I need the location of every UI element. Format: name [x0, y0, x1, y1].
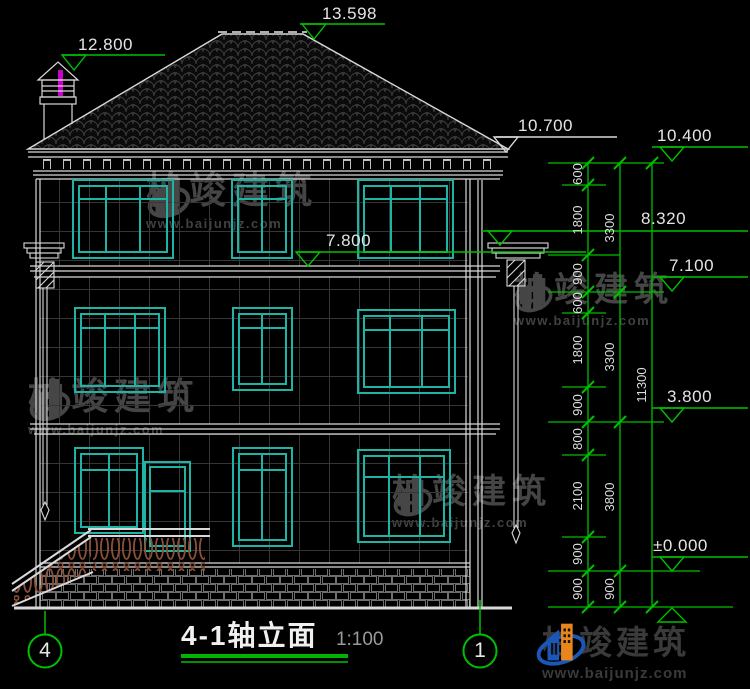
eave-cornice — [28, 152, 508, 179]
elevation-label: 13.598 — [322, 4, 377, 24]
axis-bubble-1: 1 — [467, 638, 493, 664]
elevation-label: 7.100 — [669, 256, 714, 276]
dimension-text: 1800 — [571, 190, 585, 250]
dimension-text: 1800 — [571, 320, 585, 380]
eave-elevation-symbol — [494, 137, 617, 152]
dimension-text: 900 — [603, 559, 617, 619]
dimension-text: 3800 — [603, 467, 617, 527]
elevation-label: 10.700 — [518, 116, 573, 136]
drawing-linework — [0, 0, 750, 689]
dimension-text: 3300 — [603, 198, 617, 258]
title-underline-thin — [181, 661, 348, 663]
elevation-label: ±0.000 — [653, 536, 708, 556]
elevation-label: 12.800 — [78, 35, 133, 55]
axis-bubble-4: 4 — [32, 638, 58, 664]
title-block: 4-1轴立面 1:100 — [181, 614, 383, 654]
dimension-text: 900 — [571, 559, 585, 619]
elevation-label: 7.800 — [326, 231, 371, 251]
dimension-text: 2100 — [571, 466, 585, 526]
elevation-label: 3.800 — [667, 387, 712, 407]
dimension-text: 3300 — [603, 327, 617, 387]
drawing-title: 4-1轴立面 — [181, 614, 317, 654]
elevation-label: 10.400 — [657, 126, 712, 146]
title-underline — [181, 654, 348, 658]
chimney-flue-accent — [58, 70, 63, 96]
elevation-drawing: 柏竣建筑 www.baijunjz.com 柏竣建筑 www.baijunjz.… — [0, 0, 750, 689]
brand-logo-icon — [534, 616, 592, 670]
dimension-text: 11300 — [635, 355, 649, 415]
dimension-text: 800 — [571, 409, 585, 469]
drawing-scale: 1:100 — [336, 629, 384, 651]
elevation-label: 8.320 — [641, 209, 686, 229]
brand-logo: 柏竣建筑 www.baijunjz.com — [534, 616, 690, 682]
dentil-band — [40, 159, 498, 169]
